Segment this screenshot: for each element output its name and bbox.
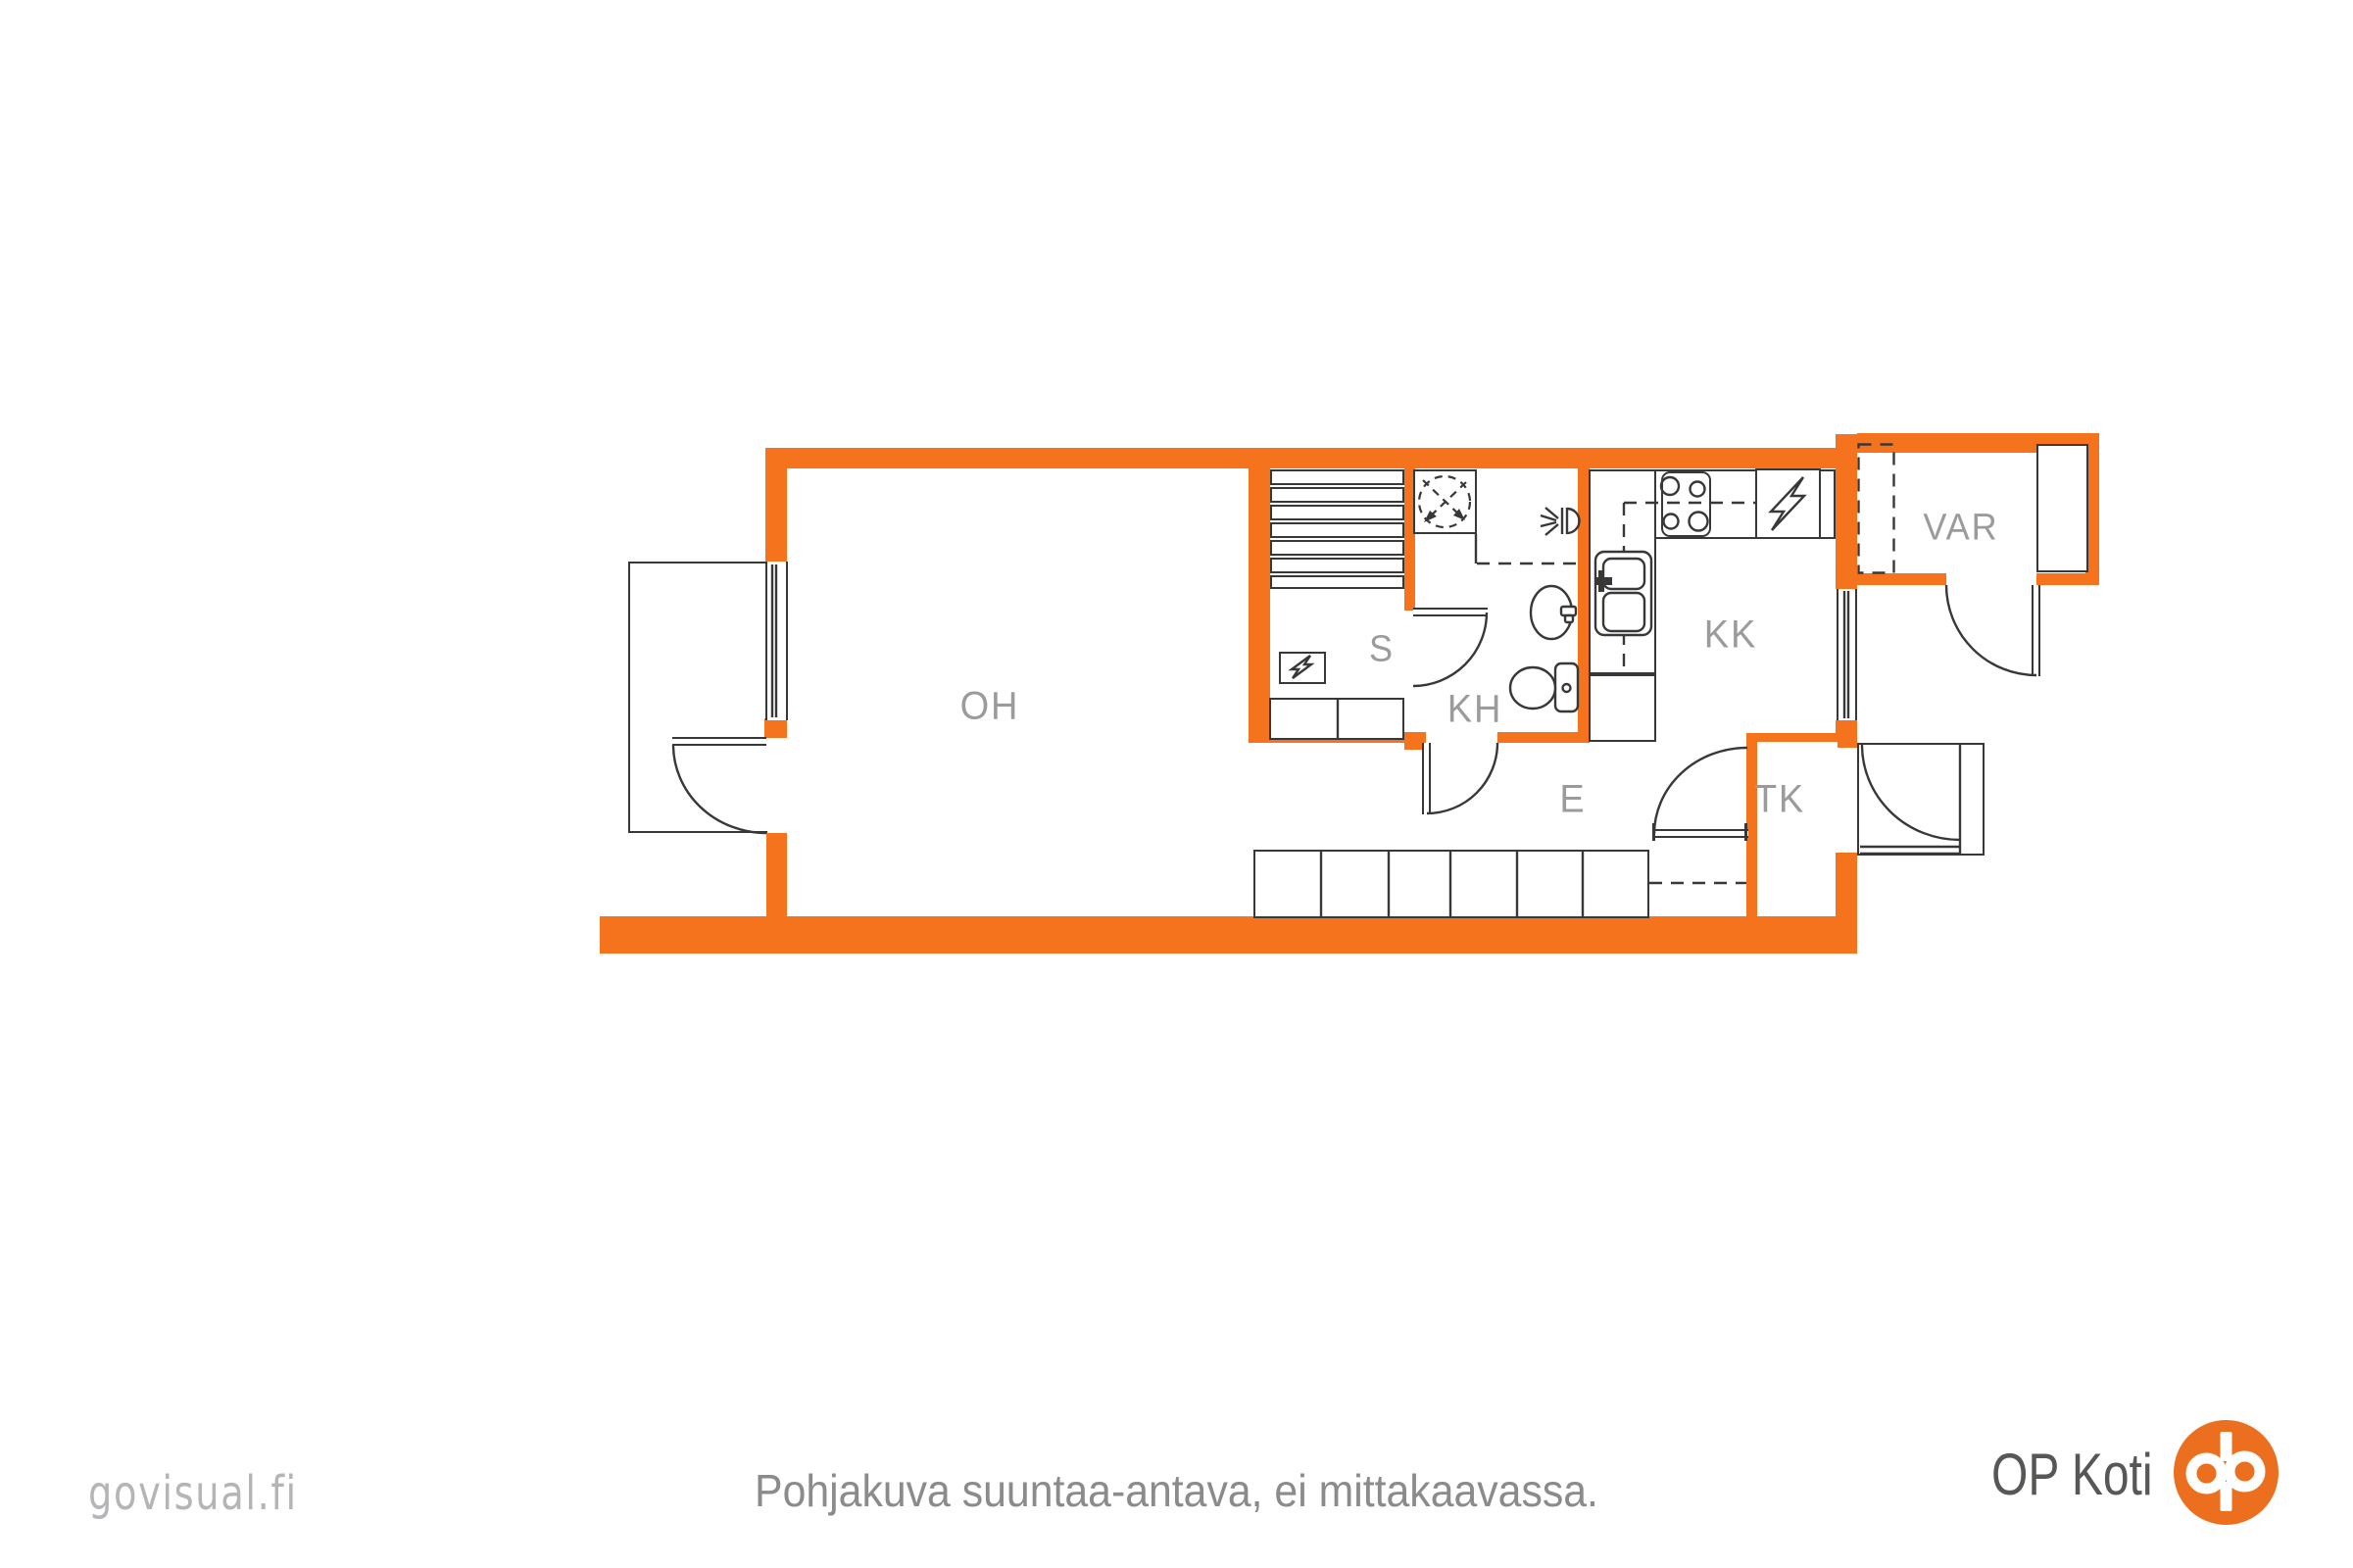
watermark-text: govisual.fi bbox=[88, 1466, 298, 1521]
room-label-tk: TK bbox=[1754, 778, 1805, 822]
stove-burners-icon bbox=[1661, 477, 1708, 531]
disclaimer-text: Pohjakuva suuntaa-antava, ei mittakaavas… bbox=[82, 1464, 2271, 1517]
sauna-lightning-bolt-icon bbox=[1292, 656, 1311, 678]
tk-entry-door-arc bbox=[1862, 745, 1960, 840]
room-label-kk: KK bbox=[1704, 613, 1757, 658]
room-label-e: E bbox=[1559, 778, 1586, 822]
window-glazing bbox=[772, 564, 1848, 718]
kh-door-arc bbox=[1427, 743, 1497, 813]
floorplan-page: OH S KH KK E TK VAR Pohjakuva suuntaa-an… bbox=[0, 0, 2353, 1568]
e-tk-door-arc bbox=[1654, 748, 1747, 834]
oh-terrace-door-arc bbox=[673, 745, 766, 833]
room-label-kh: KH bbox=[1447, 688, 1503, 732]
room-label-var: VAR bbox=[1923, 508, 1998, 550]
door-arcs bbox=[673, 585, 2036, 840]
room-label-oh: OH bbox=[960, 685, 1020, 729]
room-label-s: S bbox=[1369, 629, 1395, 671]
sauna-door-arc bbox=[1413, 612, 1487, 686]
dashed-lines bbox=[1477, 445, 1894, 884]
brand-wordmark: OP Koti bbox=[1991, 1441, 2153, 1508]
wall-light-icon bbox=[1541, 508, 1580, 535]
var-door-arc bbox=[1946, 585, 2036, 675]
kk-lightning-bolt-icon bbox=[1771, 477, 1804, 530]
washbasin-icon bbox=[1531, 586, 1576, 639]
toilet-icon bbox=[1510, 663, 1578, 711]
kitchen-sink-icon bbox=[1595, 552, 1651, 635]
shower-drain-icon bbox=[1419, 476, 1470, 527]
var-dashed-partition bbox=[1859, 445, 1894, 573]
plan-linework bbox=[0, 0, 2353, 1568]
